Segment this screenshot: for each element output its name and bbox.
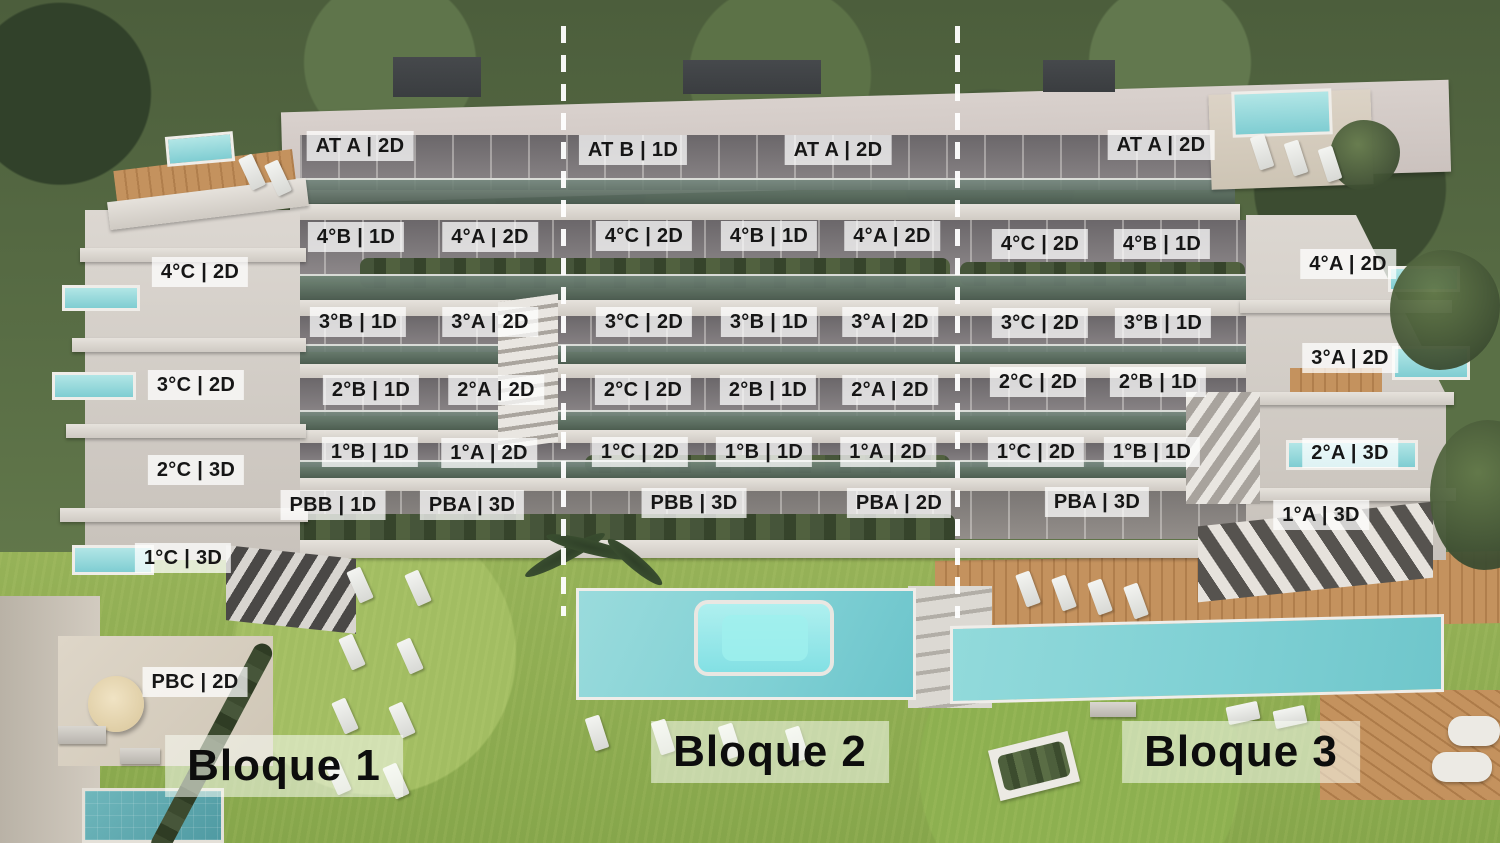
unit-label-block3: PBA | 3D	[1045, 487, 1149, 517]
unit-label-block3: 4°C | 2D	[992, 229, 1088, 259]
unit-label-block2: 2°C | 2D	[595, 375, 691, 405]
unit-label-block3: 1°A | 3D	[1273, 500, 1369, 530]
unit-label-block2: 3°B | 1D	[721, 307, 817, 337]
unit-label-block1: PBB | 1D	[281, 490, 386, 520]
unit-label-block1: 4°A | 2D	[442, 222, 538, 252]
unit-label-block1: PBA | 3D	[420, 490, 524, 520]
unit-label-block2: 4°C | 2D	[596, 221, 692, 251]
unit-label-block2: PBA | 2D	[847, 488, 951, 518]
unit-label-block1: 3°A | 2D	[442, 307, 538, 337]
unit-label-block1: 4°B | 1D	[308, 222, 404, 252]
unit-label-block3: 2°C | 2D	[990, 367, 1086, 397]
unit-label-block3: 4°B | 1D	[1114, 229, 1210, 259]
unit-label-block1: 3°C | 2D	[148, 370, 244, 400]
unit-label-block2: AT B | 1D	[579, 135, 687, 165]
unit-label-block1: PBC | 2D	[143, 667, 248, 697]
unit-label-block3: 4°A | 2D	[1300, 249, 1396, 279]
unit-label-block2: PBB | 3D	[642, 488, 747, 518]
unit-label-block2: 1°A | 2D	[840, 437, 936, 467]
unit-label-block2: 3°C | 2D	[596, 307, 692, 337]
unit-label-block3: AT A | 2D	[1108, 130, 1215, 160]
block-title: Bloque 2	[651, 721, 889, 783]
unit-label-block2: 2°A | 2D	[842, 375, 938, 405]
unit-label-block1: 1°C | 3D	[135, 543, 231, 573]
unit-label-block2: 1°C | 2D	[592, 437, 688, 467]
unit-label-block3: 2°B | 1D	[1110, 367, 1206, 397]
unit-label-block3: 2°A | 3D	[1302, 438, 1398, 468]
unit-label-block1: 1°B | 1D	[322, 437, 418, 467]
unit-label-block2: 4°B | 1D	[721, 221, 817, 251]
unit-label-block3: 3°A | 2D	[1302, 343, 1398, 373]
unit-label-block2: 3°A | 2D	[842, 307, 938, 337]
unit-label-block3: 1°B | 1D	[1104, 437, 1200, 467]
unit-label-block1: 2°B | 1D	[323, 375, 419, 405]
unit-label-block2: 2°B | 1D	[720, 375, 816, 405]
unit-label-block1: 3°B | 1D	[310, 307, 406, 337]
labels-layer: AT A | 2D4°B | 1D4°A | 2D4°C | 2D3°B | 1…	[0, 0, 1500, 843]
unit-label-block1: 2°A | 2D	[448, 375, 544, 405]
unit-label-block1: 4°C | 2D	[152, 257, 248, 287]
unit-label-block1: 2°C | 3D	[148, 455, 244, 485]
unit-label-block2: 1°B | 1D	[716, 437, 812, 467]
unit-label-block2: 4°A | 2D	[844, 221, 940, 251]
block-title: Bloque 3	[1122, 721, 1360, 783]
unit-label-block1: AT A | 2D	[307, 131, 414, 161]
unit-label-block2: AT A | 2D	[785, 135, 892, 165]
unit-label-block1: 1°A | 2D	[441, 438, 537, 468]
unit-label-block3: 3°C | 2D	[992, 308, 1088, 338]
unit-label-block3: 3°B | 1D	[1115, 308, 1211, 338]
block-title: Bloque 1	[165, 735, 403, 797]
property-render: AT A | 2D4°B | 1D4°A | 2D4°C | 2D3°B | 1…	[0, 0, 1500, 843]
unit-label-block3: 1°C | 2D	[988, 437, 1084, 467]
